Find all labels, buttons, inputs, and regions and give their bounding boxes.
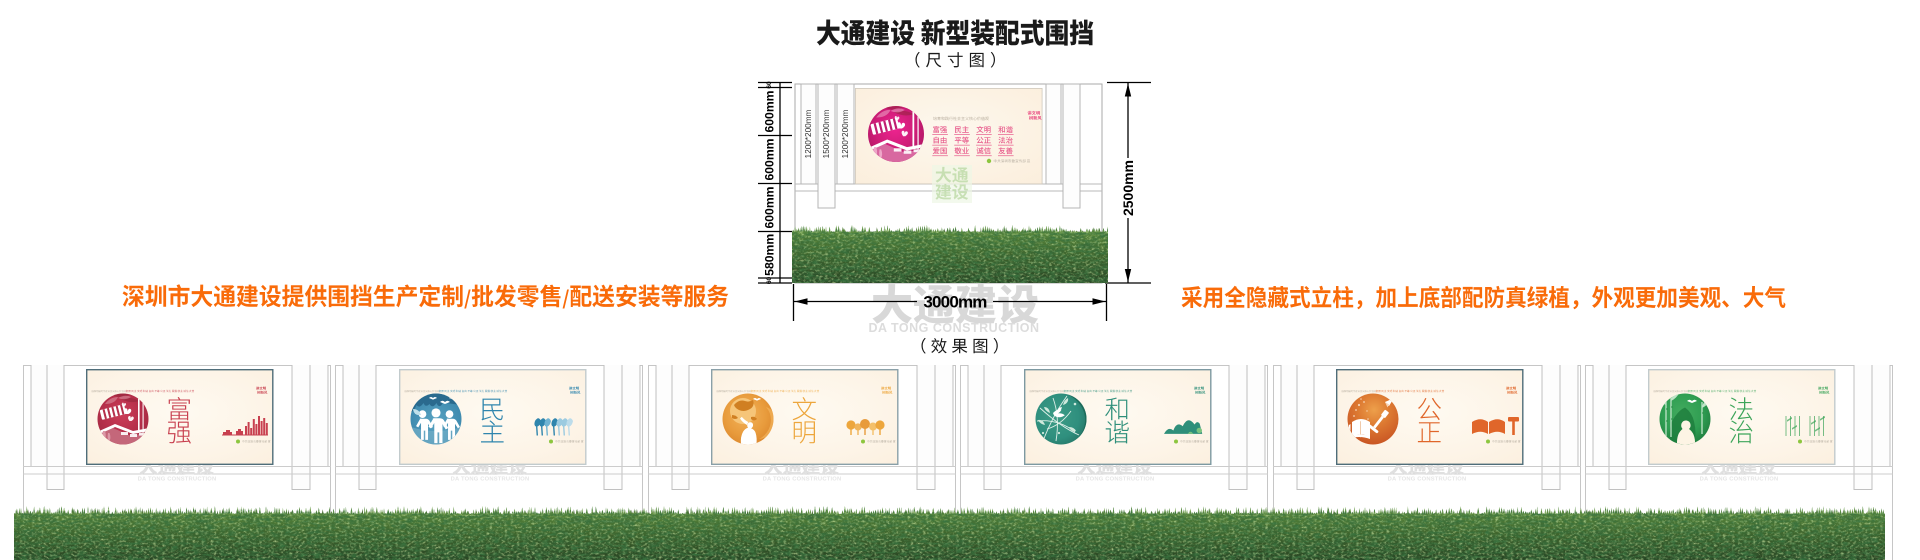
svg-text:3000mm: 3000mm — [923, 293, 987, 312]
svg-text:60: 60 — [766, 81, 773, 89]
svg-text:600mm: 600mm — [763, 186, 777, 228]
svg-text:580mm: 580mm — [763, 234, 777, 276]
svg-text:600mm: 600mm — [763, 138, 777, 180]
svg-text:60: 60 — [766, 277, 773, 285]
svg-text:600mm: 600mm — [763, 90, 777, 132]
svg-text:2500mm: 2500mm — [1120, 160, 1136, 216]
